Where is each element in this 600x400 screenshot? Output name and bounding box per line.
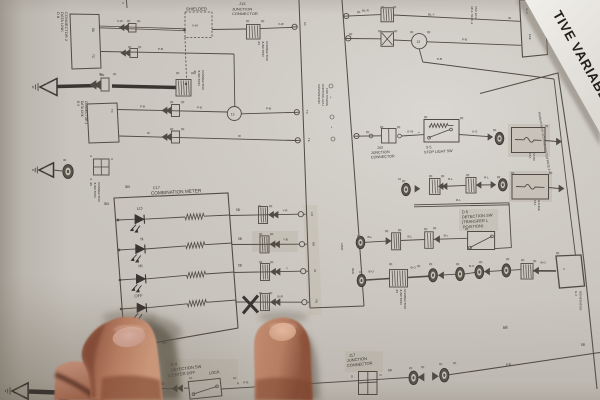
svg-text:CONNECTOR: CONNECTOR: [201, 70, 205, 91]
svg-text:5B: 5B: [388, 368, 392, 372]
svg-text:TC: TC: [91, 54, 95, 59]
svg-text:5B: 5B: [125, 184, 130, 189]
svg-text:S-O: S-O: [472, 130, 478, 134]
svg-text:P-B: P-B: [158, 47, 163, 51]
svg-text:5B: 5B: [104, 201, 109, 206]
svg-text:Y: Y: [286, 267, 288, 271]
svg-text:V-W: V-W: [192, 24, 198, 28]
svg-text:B-R: B-R: [278, 295, 284, 299]
svg-text:32: 32: [508, 16, 512, 20]
svg-text:CONNECTOR: CONNECTOR: [265, 41, 269, 62]
svg-text:A: A: [111, 157, 113, 161]
svg-text:V-W: V-W: [117, 19, 123, 23]
svg-text:BL-Y: BL-Y: [428, 13, 435, 17]
svg-text:Y-B: Y-B: [283, 238, 288, 242]
svg-text:GENERATOR: GENERATOR: [579, 291, 583, 311]
svg-text:CONNECTOR: CONNECTOR: [232, 11, 258, 16]
svg-text:10: 10: [398, 177, 402, 181]
svg-text:SUSPENSION: SUSPENSION: [317, 84, 321, 104]
svg-text:JUNCTION: JUNCTION: [399, 289, 403, 305]
svg-text:R-L: R-L: [448, 177, 453, 181]
svg-text:JUNCTION: JUNCTION: [93, 182, 97, 198]
svg-text:5B: 5B: [236, 208, 240, 212]
svg-text:VN: VN: [315, 299, 319, 303]
svg-text:BL-R: BL-R: [362, 9, 370, 13]
svg-text:R-L: R-L: [484, 176, 489, 180]
svg-text:TC: TC: [110, 109, 114, 113]
svg-text:A: A: [90, 154, 92, 158]
svg-text:D 9: D 9: [76, 101, 80, 106]
svg-text:RED: RED: [351, 268, 355, 274]
svg-text:STOP: STOP: [532, 153, 536, 161]
svg-text:R-L: R-L: [456, 198, 461, 202]
svg-text:5B: 5B: [238, 264, 242, 268]
svg-text:P-B: P-B: [243, 380, 248, 385]
svg-text:W: W: [147, 131, 150, 135]
svg-text:CONTROL ECU: CONTROL ECU: [321, 84, 325, 106]
svg-text:B-O: B-O: [469, 264, 475, 268]
svg-text:B-L: B-L: [368, 235, 373, 239]
svg-text:15A: 15A: [533, 200, 537, 205]
svg-text:B-O: B-O: [411, 266, 417, 270]
svg-text:P-B: P-B: [266, 107, 271, 111]
svg-text:GAUGE: GAUGE: [537, 200, 541, 211]
svg-text:EXE: EXE: [528, 34, 532, 40]
svg-text:13: 13: [231, 113, 235, 117]
svg-text:P-B: P-B: [506, 362, 512, 367]
svg-text:m: m: [418, 132, 420, 134]
svg-text:5B: 5B: [503, 325, 509, 330]
svg-text:A: A: [90, 177, 92, 181]
svg-text:P-B: P-B: [437, 57, 442, 61]
svg-text:G-W: G-W: [407, 130, 413, 134]
svg-text:FOR TOWING: FOR TOWING: [325, 88, 329, 106]
svg-text:5B: 5B: [238, 237, 242, 241]
svg-text:HI: HI: [138, 263, 143, 268]
svg-text:TE: TE: [307, 138, 311, 142]
svg-text:DATA LINK: DATA LINK: [80, 101, 84, 118]
svg-text:L/BAT: L/BAT: [340, 243, 344, 251]
svg-text:P-B: P-B: [462, 38, 467, 42]
svg-text:Y-R: Y-R: [283, 209, 289, 213]
svg-text:P-B: P-B: [197, 106, 202, 110]
svg-text:JUNCTION: JUNCTION: [261, 41, 265, 57]
svg-text:N: N: [140, 236, 143, 241]
svg-text:30: 30: [63, 158, 67, 162]
svg-text:CONNECTOR 2: CONNECTOR 2: [64, 12, 69, 42]
svg-text:VSC ECU: VSC ECU: [474, 6, 478, 19]
svg-text:J/4: J/4: [395, 289, 399, 293]
svg-text:CONNECTOR 1: CONNECTOR 1: [84, 101, 88, 124]
svg-text:P-B: P-B: [140, 105, 145, 109]
svg-text:CONNECTOR: CONNECTOR: [97, 182, 101, 203]
svg-text:B-O: B-O: [541, 261, 547, 265]
svg-text:SHIELDED: SHIELDED: [186, 7, 207, 12]
svg-text:J/1: J/1: [257, 41, 261, 45]
svg-text:AB & TRAIL &: AB & TRAIL &: [470, 6, 474, 24]
svg-text:J43: J43: [377, 146, 383, 150]
svg-text:A: A: [562, 268, 566, 270]
svg-text:34: 34: [313, 269, 317, 273]
svg-text:J13: J13: [239, 1, 246, 6]
svg-text:15A: 15A: [528, 153, 532, 158]
svg-text:W: W: [238, 134, 241, 138]
svg-text:OFF: OFF: [134, 293, 143, 299]
svg-text:9A: 9A: [303, 22, 307, 26]
svg-text:CONNECTOR: CONNECTOR: [403, 289, 407, 310]
svg-text:G 2: G 2: [574, 291, 578, 296]
svg-text:J/0: J/0: [89, 182, 93, 186]
svg-text:NR: NR: [312, 242, 316, 246]
svg-text:S 5: S 5: [426, 145, 432, 149]
svg-text:B-L: B-L: [444, 234, 449, 238]
svg-text:JUNCTION: JUNCTION: [197, 70, 201, 86]
svg-text:B-O: B-O: [369, 270, 375, 274]
svg-text:V-W: V-W: [278, 22, 284, 26]
svg-text:B-L: B-L: [408, 235, 413, 239]
svg-text:13: 13: [417, 40, 421, 44]
svg-text:TC: TC: [305, 110, 309, 114]
